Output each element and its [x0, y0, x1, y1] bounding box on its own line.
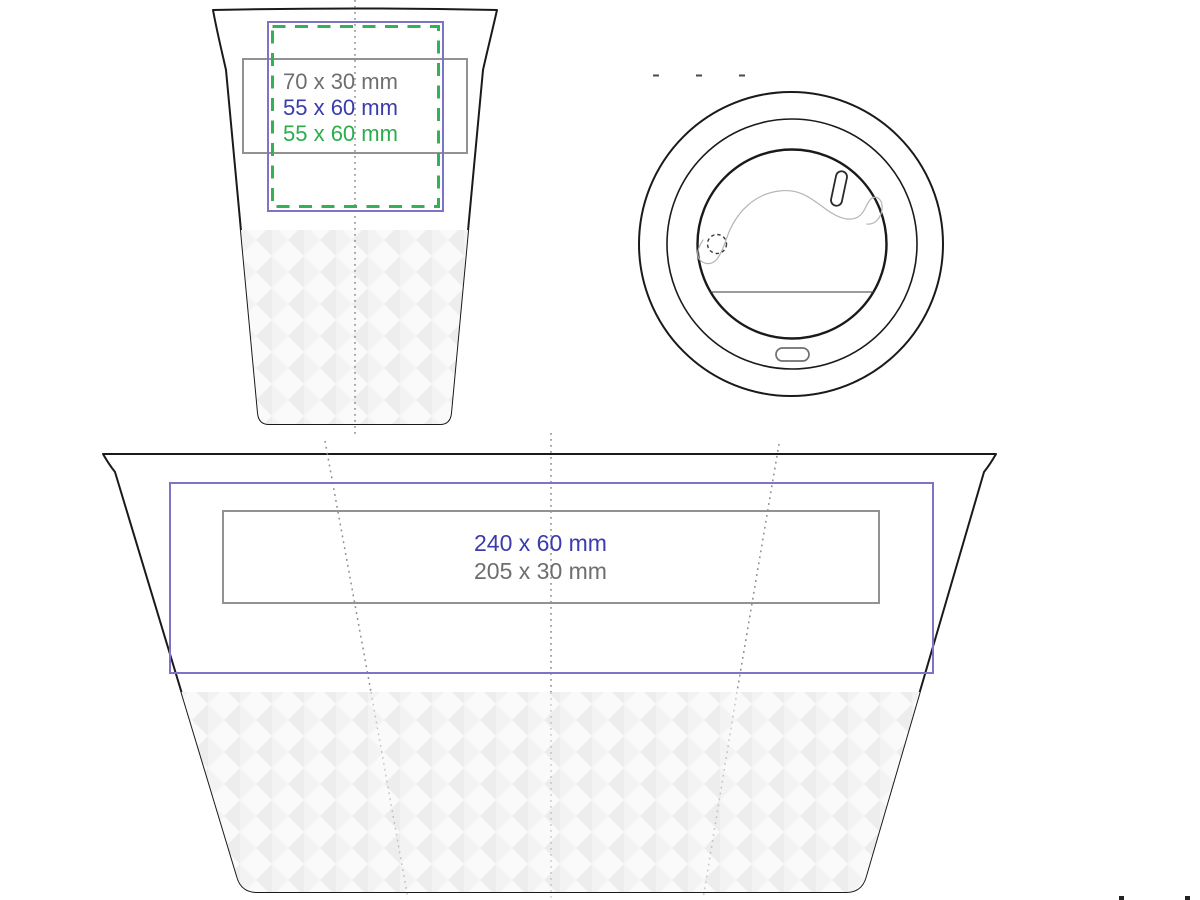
- unwrapped-label-gray: 205 x 30 mm: [474, 558, 607, 584]
- cup-print-template-canvas: 70 x 30 mm 55 x 60 mm 55 x 60 mm: [0, 0, 1200, 900]
- lid-top-view: [639, 76, 943, 397]
- front-cup-texture: [216, 230, 498, 426]
- front-label-blue: 55 x 60 mm: [283, 95, 398, 120]
- front-label-gray: 70 x 30 mm: [283, 69, 398, 94]
- front-label-green: 55 x 60 mm: [283, 121, 398, 146]
- unwrapped-texture: [100, 692, 1000, 893]
- clipped-edge-marks: [1119, 896, 1190, 900]
- unwrapped-label-blue: 240 x 60 mm: [474, 530, 607, 556]
- lid-tab: [776, 348, 809, 361]
- print-template-page: 70 x 30 mm 55 x 60 mm 55 x 60 mm: [0, 0, 1200, 900]
- unwrapped-view: 240 x 60 mm 205 x 30 mm: [100, 433, 1000, 900]
- front-view: 70 x 30 mm 55 x 60 mm 55 x 60 mm: [213, 0, 498, 438]
